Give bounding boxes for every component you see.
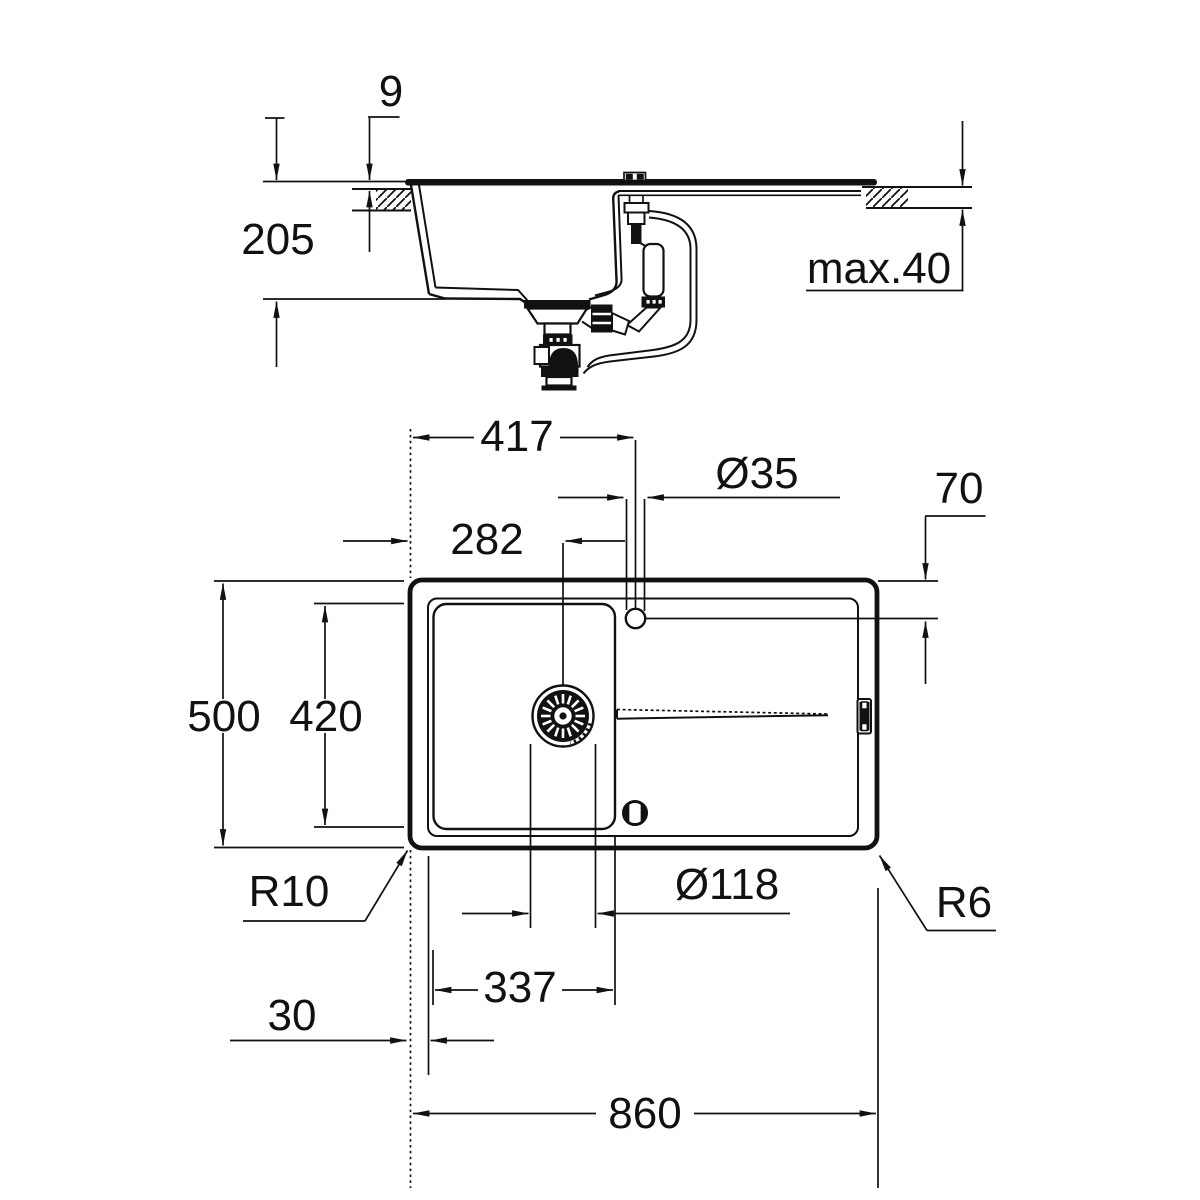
dim-label-860: 860 bbox=[608, 1089, 681, 1138]
dim-bowl-width: 337 bbox=[435, 963, 613, 1012]
outlet-base bbox=[542, 386, 577, 391]
counter-left-hatch bbox=[376, 190, 411, 210]
callout-r6: R6 bbox=[880, 856, 997, 931]
overflow-connector-flange bbox=[625, 203, 649, 213]
sink-dimension-drawing: 9 205 max.40 bbox=[0, 0, 1200, 1200]
bowl-left-wall-outer bbox=[411, 185, 429, 294]
tap-hole-section-fill-left bbox=[626, 174, 633, 180]
overflow-tube bbox=[627, 308, 661, 332]
overflow-slot-icon bbox=[858, 699, 872, 734]
dim-tap-from-top: 70 bbox=[925, 464, 986, 684]
overflow-connector-body bbox=[628, 213, 645, 225]
dim-overall-width: 860 bbox=[413, 1089, 876, 1138]
technical-drawing-page: 9 205 max.40 bbox=[0, 0, 1200, 1200]
bowl-left-wall-inner bbox=[419, 185, 436, 288]
dim-label-r10: R10 bbox=[249, 867, 330, 916]
strainer-flange-band bbox=[524, 300, 591, 309]
dim-label-rim-thickness: 9 bbox=[379, 67, 403, 116]
dim-label-417: 417 bbox=[480, 412, 553, 461]
section-view: 9 205 max.40 bbox=[241, 67, 972, 391]
remote-knob-icon bbox=[623, 802, 646, 825]
side-outlet-ribs bbox=[591, 305, 613, 333]
dim-label-282: 282 bbox=[450, 515, 523, 564]
dim-rim-thickness: 9 bbox=[368, 67, 403, 252]
dim-label-bowl-depth: 205 bbox=[241, 215, 314, 264]
tailpiece bbox=[545, 324, 571, 335]
dim-label-70: 70 bbox=[935, 464, 984, 513]
counter-right-hatch bbox=[866, 188, 908, 208]
overflow-cylinder bbox=[644, 244, 664, 297]
dim-label-dia35: Ø35 bbox=[715, 449, 798, 498]
dim-label-dia118: Ø118 bbox=[675, 860, 779, 909]
tap-hole-section-fill-right bbox=[637, 174, 644, 180]
strainer-funnel bbox=[528, 309, 588, 324]
outlet-link bbox=[612, 313, 629, 335]
overflow-connector-tip bbox=[631, 224, 642, 244]
dim-overall-depth: 500 bbox=[187, 584, 260, 846]
dim-edge-to-bowl: 30 bbox=[230, 991, 494, 1041]
drain-strainer-icon bbox=[533, 686, 594, 747]
tap-hole bbox=[626, 609, 645, 628]
dim-label-337: 337 bbox=[483, 963, 556, 1012]
dim-tap-from-left: 417 bbox=[413, 412, 634, 461]
plan-view: 417 282 Ø35 70 500 bbox=[187, 412, 996, 1188]
outlet-stub bbox=[547, 377, 572, 386]
dim-label-500: 500 bbox=[187, 692, 260, 741]
bowl-right-wall-outer bbox=[589, 192, 619, 300]
trap-bottom-flange bbox=[541, 367, 579, 378]
trap-side-block bbox=[535, 347, 550, 364]
dim-bowl-depth: 205 bbox=[241, 118, 314, 367]
dim-tap-hole-diameter: Ø35 bbox=[558, 449, 840, 498]
callout-r10: R10 bbox=[243, 851, 408, 922]
dim-drain-from-left: 282 bbox=[343, 515, 625, 564]
dim-drain-diameter: Ø118 bbox=[462, 860, 790, 914]
dim-label-counter-thickness: max.40 bbox=[807, 244, 951, 293]
dim-bowl-length: 420 bbox=[289, 606, 362, 825]
dim-label-30: 30 bbox=[268, 991, 317, 1040]
dim-label-420: 420 bbox=[289, 692, 362, 741]
dim-label-r6: R6 bbox=[936, 878, 992, 927]
